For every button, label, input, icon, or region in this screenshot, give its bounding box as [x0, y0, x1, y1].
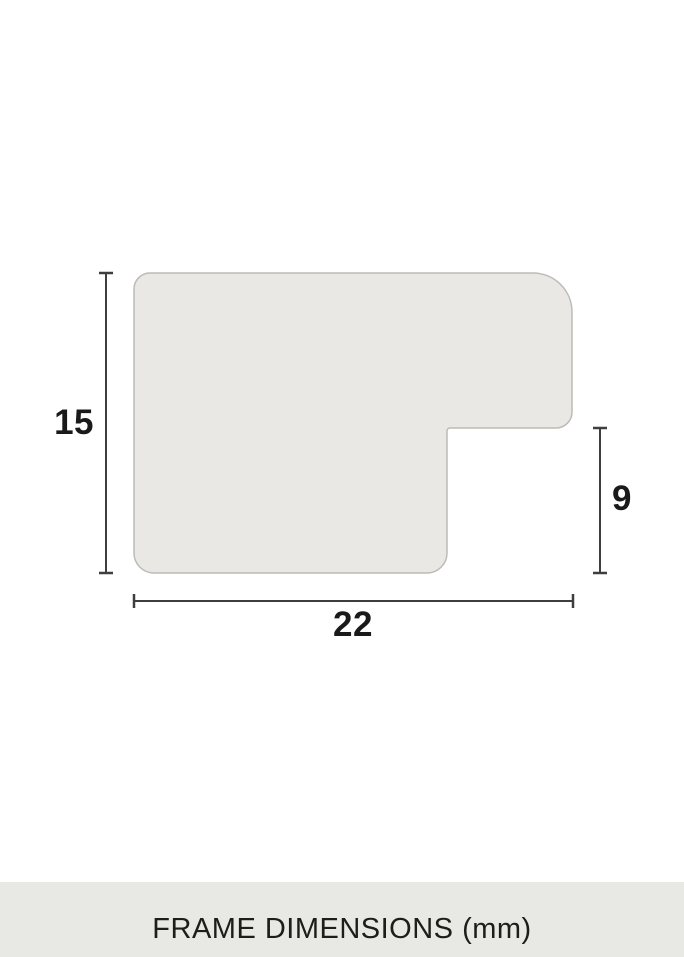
caption-text: FRAME DIMENSIONS (mm) [0, 913, 684, 946]
frame-profile-shape [134, 273, 572, 573]
height-dimension-line [99, 273, 113, 573]
rabbet-dimension-label: 9 [604, 480, 640, 519]
height-dimension-label: 15 [30, 404, 94, 443]
caption-band: FRAME DIMENSIONS (mm) [0, 882, 684, 957]
frame-profile-diagram: 15 9 22 [0, 0, 684, 882]
width-dimension-label: 22 [303, 606, 403, 645]
diagram-canvas [0, 0, 684, 882]
